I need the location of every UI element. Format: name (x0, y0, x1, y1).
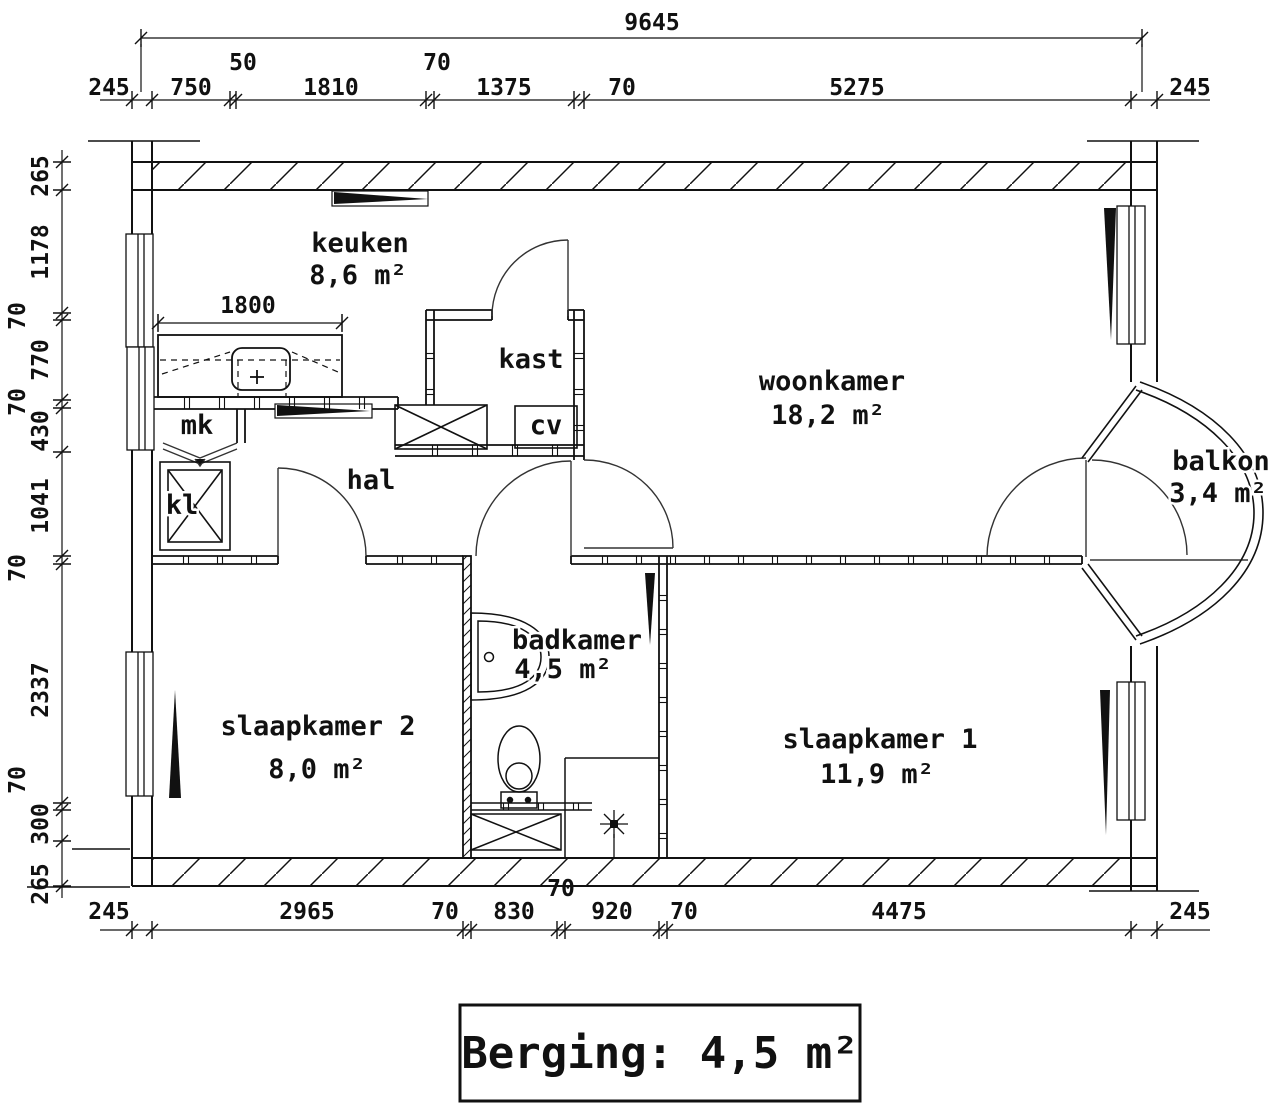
dim-kitchen-counter: 1800 (220, 293, 275, 319)
dim-bot-0: 245 (88, 899, 130, 925)
dim-bot-8: 245 (1169, 899, 1211, 925)
label-balkon: balkon (1172, 446, 1270, 477)
dim-bot-4: 70 (547, 876, 575, 902)
label-woonkamer: woonkamer (759, 366, 905, 397)
dim-left-3: 770 (28, 339, 54, 381)
window-left-kitchen (126, 234, 153, 347)
label-mk: mk (181, 410, 214, 441)
floorplan-page: 9645 245 750 50 1810 70 1375 70 5275 245… (0, 0, 1280, 1105)
dim-top-6: 70 (608, 75, 636, 101)
dim-left-10: 300 (28, 803, 54, 845)
dim-bot-3: 830 (493, 899, 535, 925)
area-slaapkamer1: 11,9 m² (820, 759, 934, 790)
toilet (498, 726, 540, 808)
dim-left-8: 2337 (28, 662, 54, 717)
dim-top-3: 1810 (303, 75, 358, 101)
window-right-bedroom1 (1117, 682, 1145, 820)
dim-top-1: 750 (170, 75, 212, 101)
label-slaapkamer2: slaapkamer 2 (220, 711, 415, 742)
dim-left-5: 430 (28, 410, 54, 452)
storage-note-text: Berging: 4,5 m² (461, 1028, 858, 1079)
kitchen-counter (158, 335, 342, 397)
door-panel-left (127, 347, 154, 450)
label-kast: kast (498, 344, 563, 375)
dim-top-4: 70 (423, 50, 451, 76)
label-hal: hal (347, 465, 396, 496)
dim-bot-5: 920 (591, 899, 633, 925)
floorplan-drawing: 9645 245 750 50 1810 70 1375 70 5275 245… (0, 0, 1280, 1105)
dim-top-2: 50 (229, 50, 257, 76)
shower (565, 758, 659, 858)
label-slaapkamer1: slaapkamer 1 (782, 724, 977, 755)
dim-left-6: 1041 (28, 478, 54, 533)
label-badkamer: badkamer (512, 625, 642, 656)
dim-overall: 9645 (624, 10, 679, 36)
dim-bot-6: 70 (670, 899, 698, 925)
dim-bot-7: 4475 (871, 899, 926, 925)
area-balkon: 3,4 m² (1169, 478, 1267, 509)
dim-bot-1: 2965 (279, 899, 334, 925)
kitchen-sink (232, 348, 290, 390)
area-keuken: 8,6 m² (309, 260, 407, 291)
area-slaapkamer2: 8,0 m² (268, 754, 366, 785)
dim-left-0: 265 (28, 155, 54, 197)
window-right-livingroom (1117, 206, 1145, 344)
dim-top-5: 1375 (476, 75, 531, 101)
dimension-labels: 9645 245 750 50 1810 70 1375 70 5275 245… (5, 10, 1211, 925)
dim-left-9: 70 (5, 766, 31, 794)
area-woonkamer: 18,2 m² (771, 400, 885, 431)
dim-top-8: 245 (1169, 75, 1211, 101)
dim-left-2: 70 (5, 302, 31, 330)
label-cv: cv (530, 410, 563, 441)
dim-top-7: 5275 (829, 75, 884, 101)
dim-left-11: 265 (28, 863, 54, 905)
dim-top-0: 245 (88, 75, 130, 101)
washer-box (471, 814, 561, 850)
balcony-structure (1082, 382, 1263, 644)
window-left-bedroom2 (126, 652, 153, 796)
dim-bot-2: 70 (431, 899, 459, 925)
area-badkamer: 4,5 m² (514, 654, 612, 685)
label-kl: kl (166, 490, 199, 521)
label-keuken: keuken (311, 228, 409, 259)
drain-star-icon (600, 810, 628, 858)
dim-left-1: 1178 (28, 224, 54, 279)
storage-note-box: Berging: 4,5 m² (460, 1005, 860, 1101)
dim-left-7: 70 (5, 554, 31, 582)
